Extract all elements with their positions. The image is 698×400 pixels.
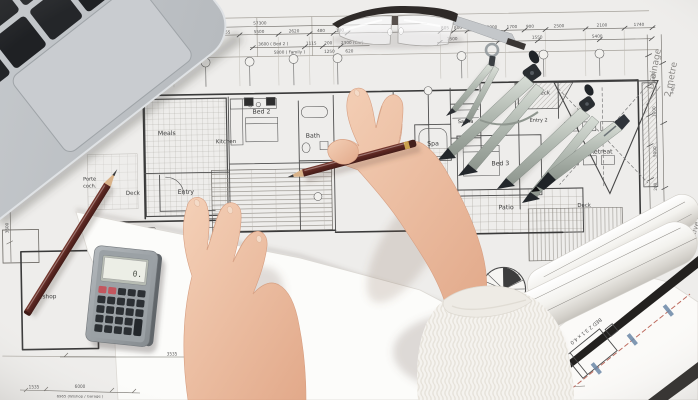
photo-architect-blueprints: Meals Kitchen Bed 2 Bath Entry Deck Livi… bbox=[0, 0, 698, 400]
vignette-overlay bbox=[0, 0, 698, 400]
scene-canvas: Meals Kitchen Bed 2 Bath Entry Deck Livi… bbox=[0, 0, 698, 400]
